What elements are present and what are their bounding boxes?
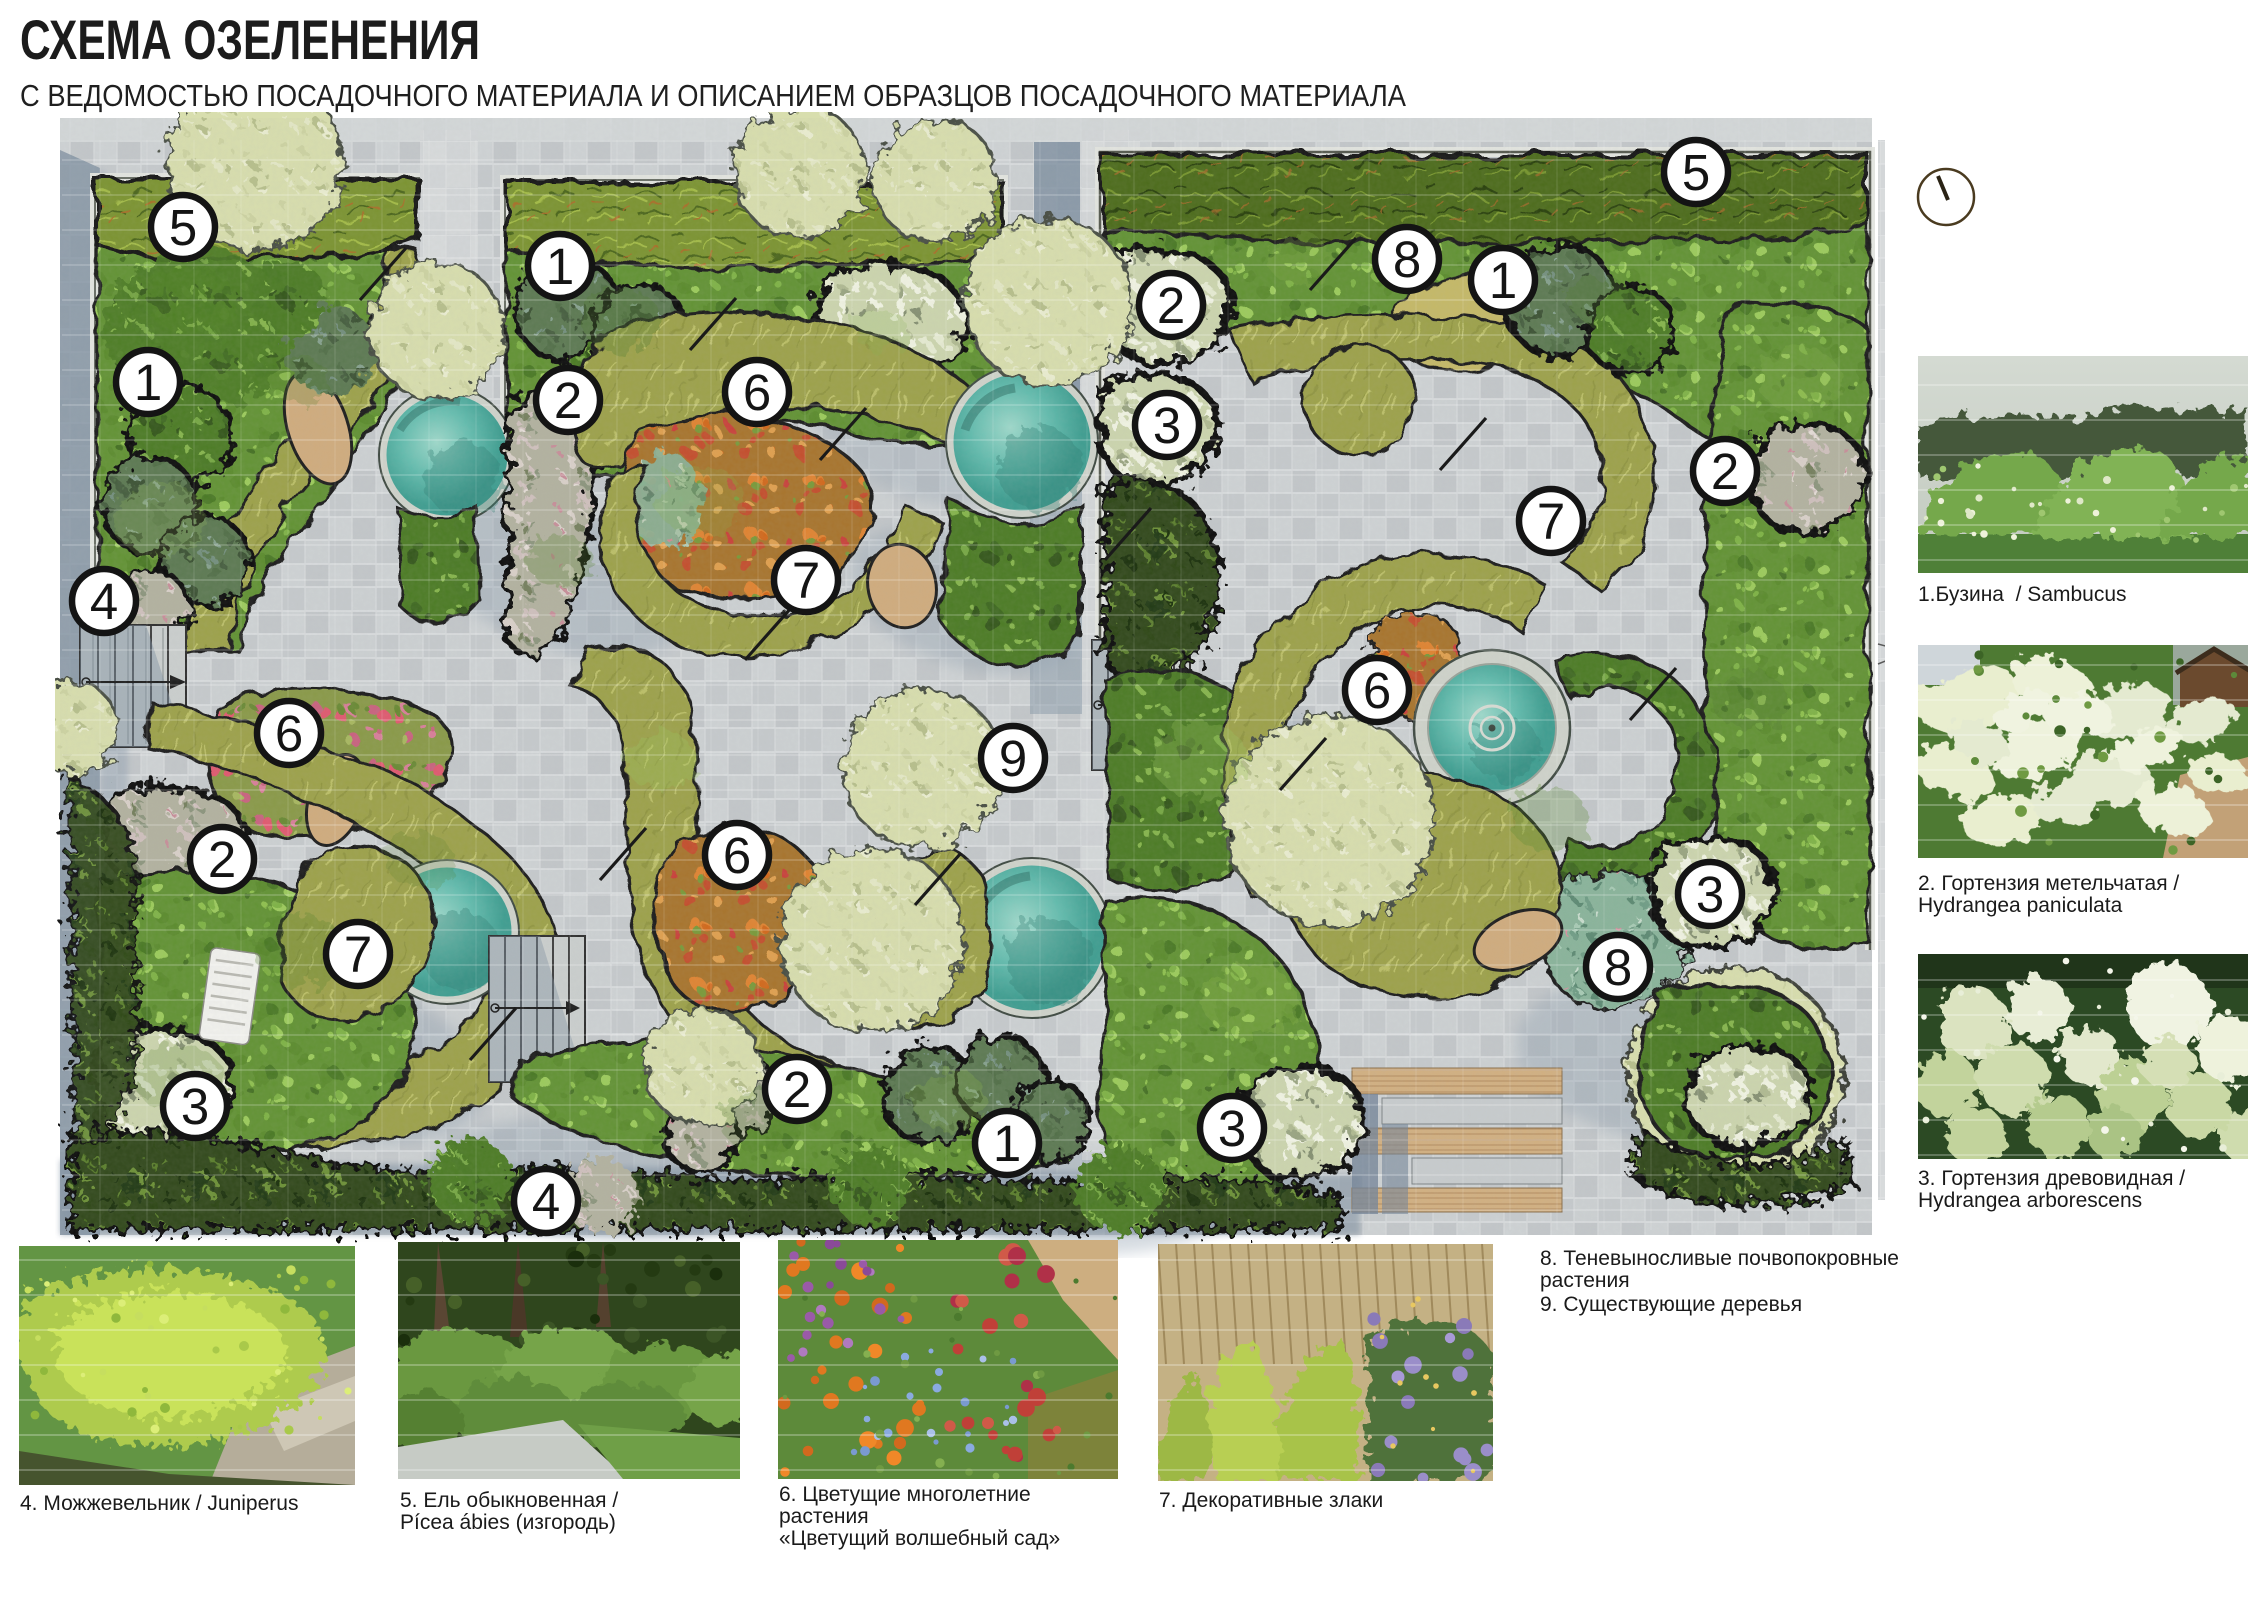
svg-text:3: 3 bbox=[181, 1078, 209, 1135]
svg-text:2: 2 bbox=[1711, 443, 1739, 500]
svg-text:7: 7 bbox=[1537, 493, 1565, 550]
svg-text:Hydrangea arborescens: Hydrangea arborescens bbox=[1918, 1189, 2142, 1212]
svg-text:1.Бузина / Sambucus: 1.Бузина / Sambucus bbox=[1918, 583, 2127, 606]
svg-text:7: 7 bbox=[792, 552, 820, 609]
svg-text:растения: растения bbox=[1540, 1269, 1630, 1292]
svg-text:8: 8 bbox=[1604, 939, 1632, 996]
svg-text:Hydrangea paniculata: Hydrangea paniculata bbox=[1918, 894, 2123, 917]
svg-text:9. Существующие деревья: 9. Существующие деревья bbox=[1540, 1293, 1802, 1316]
svg-text:«Цветущий волшебный сад»: «Цветущий волшебный сад» bbox=[779, 1527, 1060, 1550]
svg-text:5: 5 bbox=[169, 199, 197, 256]
svg-text:Pícea ábies (изгородь): Pícea ábies (изгородь) bbox=[400, 1511, 616, 1534]
svg-text:1: 1 bbox=[134, 354, 162, 411]
svg-text:1: 1 bbox=[993, 1115, 1021, 1172]
svg-text:5: 5 bbox=[1682, 144, 1710, 201]
svg-text:1: 1 bbox=[1489, 252, 1517, 309]
svg-text:6: 6 bbox=[1363, 662, 1391, 719]
svg-text:6: 6 bbox=[275, 705, 303, 762]
svg-text:1: 1 bbox=[546, 238, 574, 295]
svg-text:3. Гортензия древовидная /: 3. Гортензия древовидная / bbox=[1918, 1167, 2185, 1190]
svg-text:2. Гортензия метельчатая /: 2. Гортензия метельчатая / bbox=[1918, 872, 2179, 895]
svg-text:2: 2 bbox=[1157, 277, 1185, 334]
svg-text:4. Можжевельник / Juniperus: 4. Можжевельник / Juniperus bbox=[20, 1492, 298, 1515]
svg-text:8: 8 bbox=[1393, 231, 1421, 288]
svg-text:4: 4 bbox=[532, 1173, 560, 1230]
svg-text:3: 3 bbox=[1696, 866, 1724, 923]
svg-text:6: 6 bbox=[723, 827, 751, 884]
svg-text:растения: растения bbox=[779, 1505, 869, 1528]
svg-text:9: 9 bbox=[999, 730, 1027, 787]
svg-text:2: 2 bbox=[783, 1061, 811, 1118]
svg-text:5. Ель обыкновенная /: 5. Ель обыкновенная / bbox=[400, 1489, 618, 1512]
svg-text:7: 7 bbox=[344, 926, 372, 983]
svg-text:2: 2 bbox=[554, 372, 582, 429]
svg-text:3: 3 bbox=[1153, 397, 1181, 454]
svg-text:4: 4 bbox=[90, 573, 118, 630]
svg-text:7. Декоративные злаки: 7. Декоративные злаки bbox=[1159, 1489, 1383, 1512]
svg-text:СХЕМА ОЗЕЛЕНЕНИЯ: СХЕМА ОЗЕЛЕНЕНИЯ bbox=[20, 8, 480, 71]
svg-text:6. Цветущие многолетние: 6. Цветущие многолетние bbox=[779, 1483, 1031, 1506]
svg-text:С ВЕДОМОСТЬЮ ПОСАДОЧНОГО МАТЕР: С ВЕДОМОСТЬЮ ПОСАДОЧНОГО МАТЕРИАЛА И ОПИ… bbox=[20, 78, 1406, 113]
svg-text:6: 6 bbox=[743, 364, 771, 421]
svg-text:3: 3 bbox=[1218, 1100, 1246, 1157]
svg-text:2: 2 bbox=[208, 831, 236, 888]
svg-text:8. Теневыносливые почвопокровн: 8. Теневыносливые почвопокровные bbox=[1540, 1247, 1899, 1270]
